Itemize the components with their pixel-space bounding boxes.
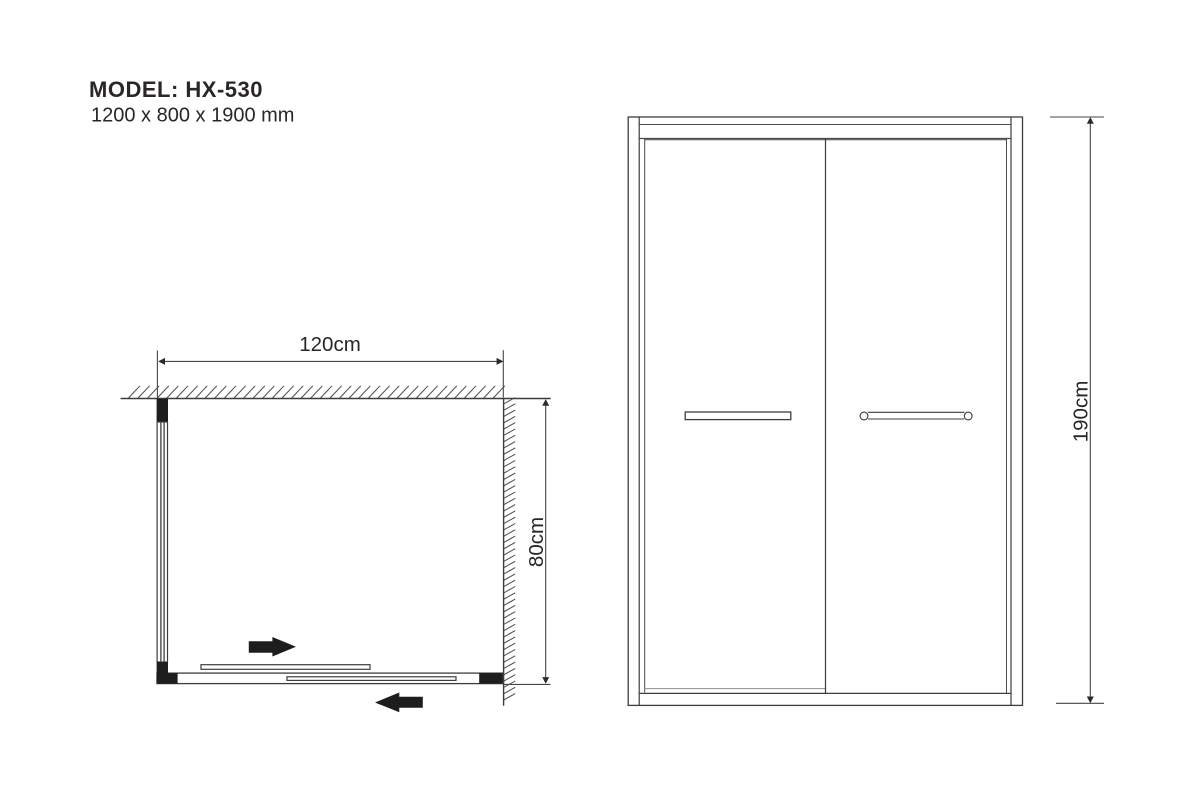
svg-text:MODEL: HX-530: MODEL: HX-530 xyxy=(89,77,263,102)
svg-text:1200 x 800 x 1900 mm: 1200 x 800 x 1900 mm xyxy=(91,105,294,127)
svg-text:190cm: 190cm xyxy=(1070,381,1093,443)
svg-text:120cm: 120cm xyxy=(299,333,361,356)
svg-text:80cm: 80cm xyxy=(525,517,548,567)
